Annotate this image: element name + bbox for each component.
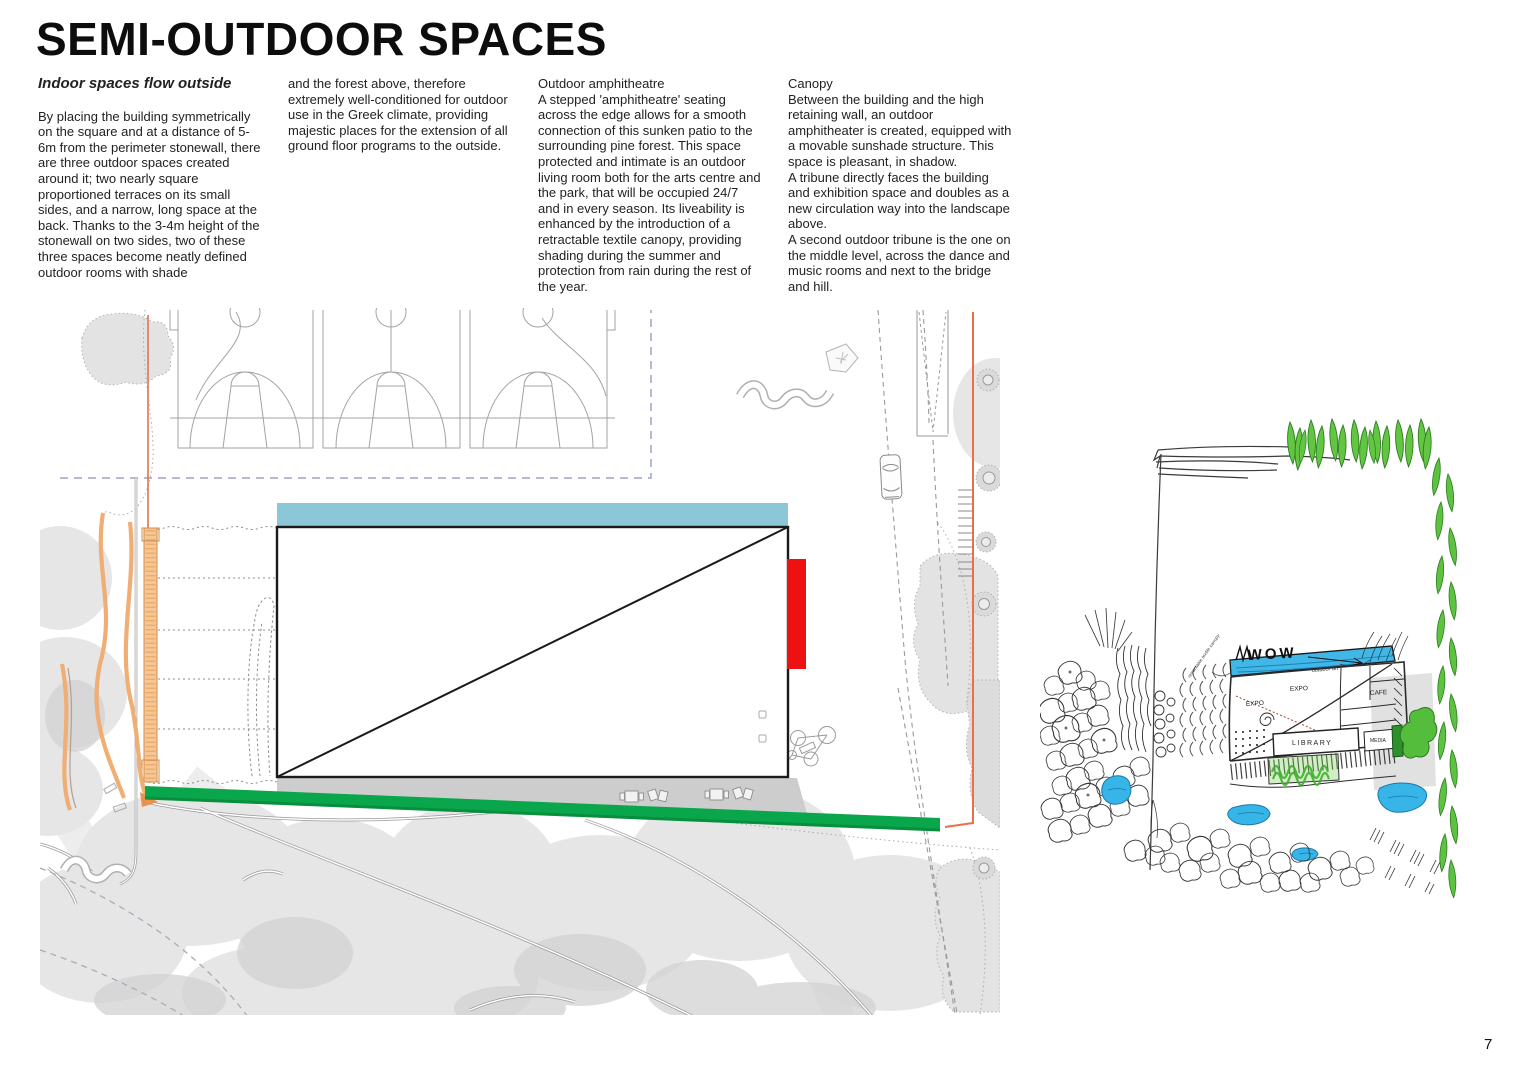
text-column-4: Canopy Between the building and the high… xyxy=(788,76,1012,294)
page-title: SEMI-OUTDOOR SPACES xyxy=(36,12,607,66)
sketch-bushes-mid xyxy=(1116,645,1175,757)
column-3-heading: Outdoor amphitheatre xyxy=(538,76,762,92)
parking-bays xyxy=(917,310,948,436)
sketch-trees-top xyxy=(1286,419,1432,470)
sketch-vegetation-bottom xyxy=(1124,800,1440,894)
column-4-body: Between the building and the high retain… xyxy=(788,92,1012,295)
sketch-label-expo-lower: EXPO xyxy=(1246,700,1265,708)
concept-sketch-drawing: LIBRARY MEDIA WOW EXPO EXPO CAFE outdoor… xyxy=(1040,410,1470,910)
sketch-annotation-canopy: retractable textile canopy xyxy=(1187,632,1221,678)
sketch-label-expo-upper: EXPO xyxy=(1290,685,1308,693)
sketch-label-wow: WOW xyxy=(1247,644,1297,664)
sketch-dash-fan xyxy=(1085,608,1132,651)
rock-icon xyxy=(826,344,858,372)
text-column-1: Indoor spaces flow outside By placing th… xyxy=(38,76,262,280)
building-footprint xyxy=(277,527,788,777)
sketch-dot-grid xyxy=(1235,729,1265,754)
column-1-heading: Indoor spaces flow outside xyxy=(38,76,262,92)
text-column-2: and the forest above, therefore extremel… xyxy=(288,76,512,154)
car-icon xyxy=(880,455,902,500)
sketch-trees-right xyxy=(1430,458,1459,898)
basketball-courts xyxy=(170,308,615,448)
column-3-body: A stepped 'amphitheatre' seating across … xyxy=(538,92,762,295)
sketch-annotation-outdoor-art: outdoor art xyxy=(1312,666,1339,674)
column-1-body: By placing the building symmetrically on… xyxy=(38,109,262,281)
text-column-3: Outdoor amphitheatre A stepped 'amphithe… xyxy=(538,76,762,294)
column-2-body: and the forest above, therefore extremel… xyxy=(288,76,512,154)
page-number: 7 xyxy=(1484,1036,1492,1053)
sketch-label-library: LIBRARY xyxy=(1292,740,1332,747)
sketch-label-cafe: CAFE xyxy=(1370,689,1388,697)
tribune-red xyxy=(787,559,806,669)
column-4-heading: Canopy xyxy=(788,76,1012,92)
terrace-steps xyxy=(148,527,277,784)
sketch-seating-arcs xyxy=(1180,663,1226,757)
canopy-strip-blue xyxy=(277,503,788,527)
site-plan-drawing xyxy=(40,308,1000,1015)
sketch-green-tribune xyxy=(1268,754,1339,785)
sketch-label-media: MEDIA xyxy=(1370,738,1387,744)
sketch-vegetation-left xyxy=(1040,661,1150,842)
